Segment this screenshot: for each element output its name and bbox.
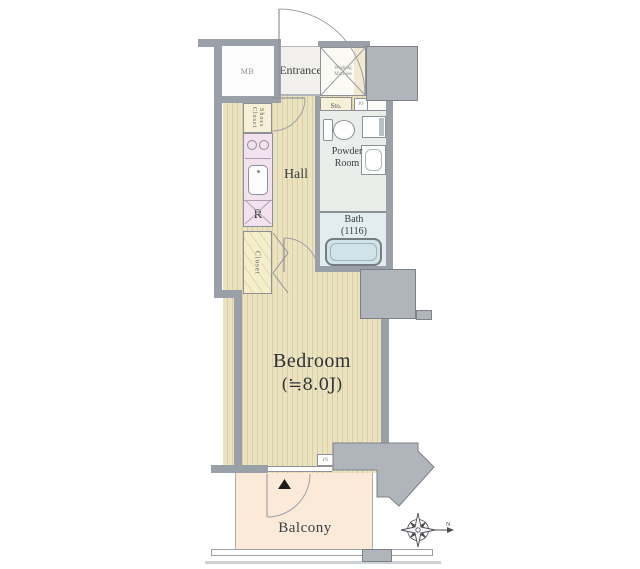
pipe-space-bottom-label: PS (323, 458, 329, 463)
compass-arrow-head (447, 527, 454, 533)
shoes-closet-label-2: Closet (251, 107, 257, 128)
structure-block-mid-right (360, 269, 416, 319)
wall-segment (318, 41, 370, 47)
wall-segment (315, 96, 320, 272)
balcony-outer-line (205, 561, 441, 564)
compass-diagonal-star (410, 522, 427, 539)
meter-box-label: MB (241, 67, 254, 76)
structure-block-arm (416, 310, 432, 320)
toilet-tank-icon (323, 119, 333, 141)
closet-label: Closet (254, 251, 262, 275)
stove-burner-icon (259, 140, 269, 150)
refrigerator-label: R (253, 206, 264, 222)
stove-burner-icon (247, 140, 257, 150)
closet: Closet (243, 231, 272, 294)
hall-label: Hall (270, 166, 322, 184)
meter-box: MB (221, 46, 274, 96)
storage-label: Sto. (330, 102, 341, 110)
vanity-counter-icon (362, 116, 386, 138)
bath-label: Bath (1116) (319, 214, 389, 237)
bedroom-label: Bedroom (≒8.0J) (240, 344, 384, 400)
balcony-small-block (362, 549, 392, 562)
entrance-room: Entrance (281, 46, 320, 96)
washing-machine-label: Washing Machine (321, 62, 365, 82)
washing-machine-space: Washing Machine (320, 47, 366, 96)
shoes-closet: Shoes Closet (243, 103, 272, 133)
vanity-control-icon (379, 118, 384, 136)
compass-center (416, 528, 420, 532)
bath-room: Bath (1116) (318, 212, 388, 268)
compass-main-star (401, 513, 435, 547)
bathtub-inner-icon (330, 243, 377, 261)
entrance-label: Entrance (279, 63, 322, 78)
structure-block-top-right (366, 46, 418, 101)
toilet-bowl-icon (333, 120, 355, 140)
balcony-label: Balcony (236, 517, 374, 539)
powder-room: Powder Room (318, 110, 388, 212)
wall-segment (211, 465, 268, 473)
stove-icon (245, 135, 271, 159)
faucet-icon (257, 170, 260, 173)
kitchen-area: R (243, 133, 273, 227)
compass-circle (408, 520, 429, 541)
pipe-space-bottom: PS (317, 454, 334, 466)
wall-segment (386, 101, 393, 269)
compass-north-label: N (446, 522, 451, 528)
refrigerator-space: R (244, 200, 272, 226)
bathtub-icon (325, 238, 382, 266)
kitchen-sink-icon (248, 165, 268, 195)
balcony-outer-rail (211, 549, 433, 556)
balcony-window (268, 466, 332, 472)
shoes-closet-label-1: Shoes (258, 108, 264, 127)
compass-icon: N (401, 513, 454, 547)
floorplan-canvas: Entrance Washing Machine Sto. PS Powder … (0, 0, 640, 569)
balcony: Balcony (235, 473, 373, 553)
wall-segment (214, 39, 222, 298)
pipe-space-top-label: PS (358, 102, 364, 107)
powder-room-label: Powder Room (319, 143, 375, 173)
